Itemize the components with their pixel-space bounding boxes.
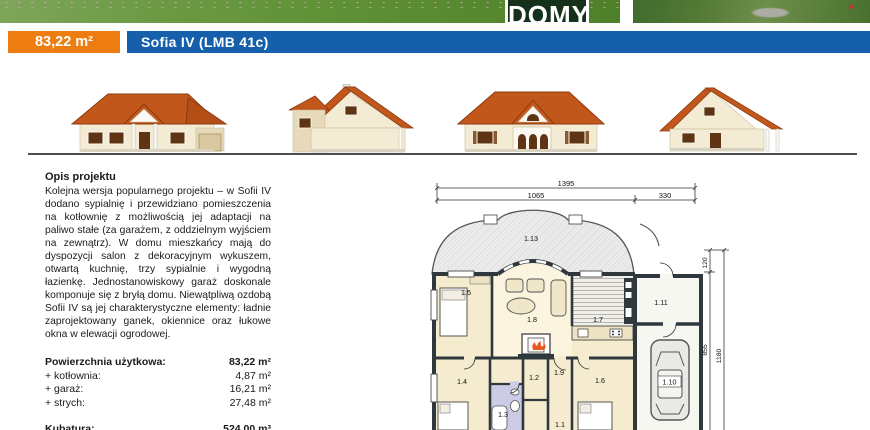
dim-top-right: 330 [659, 191, 672, 200]
elevation-front-drawing [68, 88, 228, 154]
kubatura-value: 524,00 m³ [223, 423, 271, 430]
brand-logo: DOMY [505, 0, 589, 25]
dim-right-outer: 1180 [716, 348, 723, 363]
areas-table: Powierzchnia użytkowa: 83,22 m² + kotłow… [45, 356, 271, 410]
elevation-garden-drawing [455, 87, 607, 154]
room-label-boiler: 1.11 [654, 298, 667, 307]
brand-logo-text: DOMY [508, 2, 586, 25]
room-label-bedroom3: 1.6 [595, 376, 605, 385]
areas-row-total: Powierzchnia użytkowa: 83,22 m² [45, 356, 271, 370]
areas-attic-label: + strych: [45, 397, 85, 411]
areas-boiler-label: + kotłownia: [45, 370, 101, 384]
fireplace [518, 334, 554, 358]
elevation-side-left-drawing [287, 84, 415, 154]
bedroom2-bed [438, 402, 468, 430]
brochure-page: DOMY 83,22 m² Sofia IV (LMB 41c) [0, 0, 870, 430]
room-label-living: 1.8 [527, 315, 537, 324]
room-label-bedroom2: 1.4 [457, 377, 467, 386]
kubatura-row: Kubatura: 524,00 m³ [45, 423, 271, 430]
terrace-side-arc [640, 224, 659, 246]
dim-right-offset: 120 [702, 257, 709, 269]
elevations-ground-line [28, 153, 857, 155]
room-label-bedroom1: 1.5 [461, 288, 471, 297]
areas-row-boiler: + kotłownia: 4,87 m² [45, 370, 271, 384]
area-badge: 83,22 m² [8, 31, 120, 53]
terrace-pillar-right [569, 215, 582, 224]
room-label-terrace: 1.13 [524, 234, 538, 243]
description-body: Kolejna wersja popularnego projektu – w … [45, 185, 271, 341]
room-label-wardrobe: 1.2 [529, 373, 539, 382]
kitchen-tall-units [624, 278, 633, 324]
room-label-hall: 1.1 [555, 420, 565, 429]
kitchen-sink [578, 329, 588, 337]
elevation-side-right-drawing [648, 83, 786, 154]
description-heading: Opis projektu [45, 171, 271, 183]
areas-attic-value: 27,48 m² [230, 397, 271, 411]
room-label-garage: 1.10 [663, 378, 677, 387]
kubatura-label: Kubatura: [45, 423, 95, 430]
areas-total-value: 83,22 m² [229, 356, 271, 370]
areas-garage-value: 16,21 m² [230, 383, 271, 397]
areas-row-garage: + garaż: 16,21 m² [45, 383, 271, 397]
dim-lines-right [704, 248, 729, 430]
terrace-pillar-left [484, 215, 497, 224]
room-label-corridor: 1.9 [554, 368, 564, 377]
areas-row-attic: + strych: 27,48 m² [45, 397, 271, 411]
room-label-bathroom: 1.3 [498, 410, 508, 419]
areas-garage-label: + garaż: [45, 383, 83, 397]
room-label-kitchen: 1.7 [593, 315, 603, 324]
dim-top-left: 1065 [528, 191, 545, 200]
areas-total-label: Powierzchnia użytkowa: [45, 356, 166, 370]
floor-plan: 1395 1065 330 [420, 178, 740, 430]
project-title: Sofia IV (LMB 41c) [127, 31, 870, 53]
floor-plan-drawing: 1395 1065 330 [420, 178, 740, 430]
bedroom3-bed [578, 402, 612, 430]
dim-top-total: 1395 [558, 179, 575, 188]
areas-boiler-value: 4,87 m² [235, 370, 271, 384]
kitchen-stove [610, 329, 622, 337]
banner-photo-garden [633, 0, 870, 23]
dim-right-inner: 855 [702, 344, 709, 356]
